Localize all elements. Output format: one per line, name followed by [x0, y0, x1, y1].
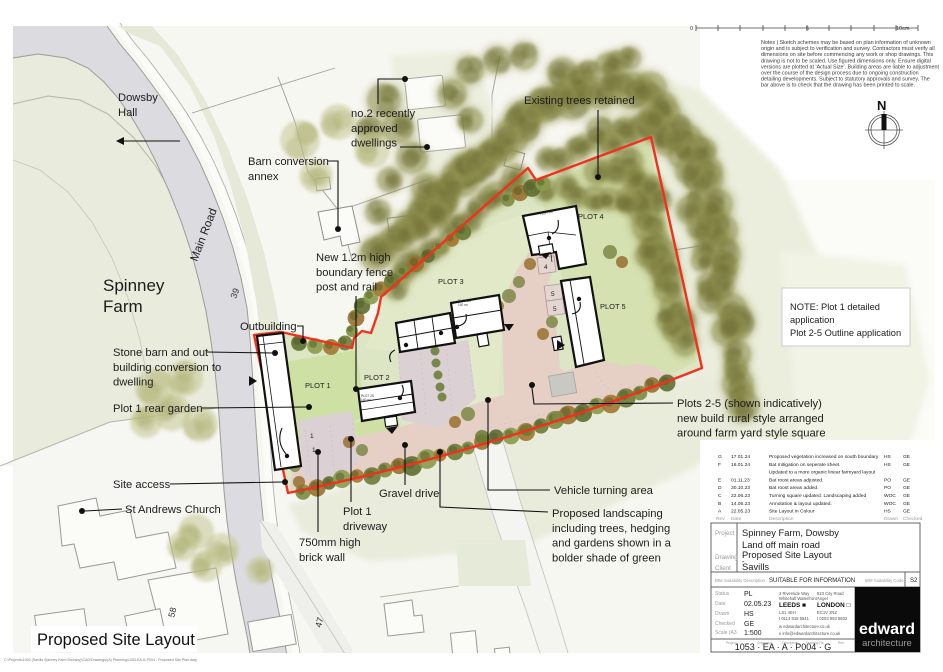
svg-text:Project: Project — [715, 530, 735, 537]
svg-text:Proposed Site Layout: Proposed Site Layout — [742, 549, 832, 560]
svg-text:Checked: Checked — [715, 621, 735, 627]
svg-text:PL: PL — [744, 591, 753, 598]
svg-text:Description: Description — [769, 516, 794, 522]
svg-text:Plots 2-5 (shown indicatively): Plots 2-5 (shown indicatively)new build … — [677, 398, 826, 440]
svg-text:architecture: architecture — [862, 638, 912, 649]
svg-text:Turning square updated. Landsc: Turning square updated. Landscaping adde… — [769, 493, 866, 499]
svg-text:Rev: Rev — [716, 516, 725, 522]
svg-text:01.11.23: 01.11.23 — [731, 477, 750, 483]
svg-text:Proposed vegetation increased: Proposed vegetation increased on south b… — [769, 454, 879, 460]
svg-text:Drawing: Drawing — [715, 554, 738, 561]
svg-text:EC1V 2NZ: EC1V 2NZ — [817, 610, 837, 615]
svg-text:5: 5 — [806, 26, 809, 32]
svg-text:Outbuilding: Outbuilding — [240, 321, 297, 333]
svg-text:Scale (A3: Scale (A3 — [715, 630, 737, 636]
svg-text:WOC: WOC — [884, 501, 896, 507]
svg-text:HS: HS — [884, 462, 892, 468]
svg-text:SUITABLE FOR INFORMATION: SUITABLE FOR INFORMATION — [769, 578, 855, 584]
svg-text:140 m²: 140 m² — [458, 303, 468, 307]
svg-text:edward: edward — [859, 621, 915, 638]
svg-text:NOTE: Plot 1 detailed: NOTE: Plot 1 detailed — [790, 302, 880, 312]
svg-text:Drawn: Drawn — [884, 516, 898, 522]
svg-text:D: D — [718, 485, 722, 491]
svg-text:S2: S2 — [910, 578, 918, 584]
svg-text:5: 5 — [551, 291, 555, 298]
svg-text:Status: Status — [715, 591, 730, 597]
svg-text:Spinney Farm, Dowsby: Spinney Farm, Dowsby — [742, 527, 839, 538]
svg-text:Existing trees retained: Existing trees retained — [524, 95, 635, 107]
svg-text:GE: GE — [903, 493, 911, 499]
svg-text:Site Layout in Colour: Site Layout in Colour — [769, 509, 815, 515]
svg-text:C: C — [718, 493, 722, 499]
svg-text:application: application — [790, 315, 834, 325]
svg-text:1: 1 — [310, 433, 314, 440]
svg-text:LS1 4EH: LS1 4EH — [779, 610, 796, 615]
svg-text:Client: Client — [715, 565, 731, 572]
svg-text:Date: Date — [731, 516, 742, 522]
svg-text:02.05.23: 02.05.23 — [744, 601, 771, 608]
svg-text:17.01.24: 17.01.24 — [731, 454, 750, 460]
svg-text:16.01.24: 16.01.24 — [731, 462, 750, 468]
svg-text:PLOT 5: PLOT 5 — [600, 302, 626, 311]
svg-text:Angel: Angel — [817, 596, 828, 601]
svg-text:Farm: Farm — [103, 297, 143, 316]
svg-text:5: 5 — [553, 306, 557, 313]
svg-text:Bat roost areas adjusted.: Bat roost areas adjusted. — [769, 477, 823, 483]
svg-text:10cm: 10cm — [896, 26, 910, 32]
svg-text:Savills: Savills — [742, 561, 769, 572]
svg-text:G: G — [718, 454, 722, 460]
svg-text:Bat mitigation on seperate she: Bat mitigation on seperate sheet. — [769, 462, 841, 468]
svg-text:w edwardarchitecture.co.uk: w edwardarchitecture.co.uk — [779, 624, 831, 629]
svg-text:Gravel drive: Gravel drive — [379, 488, 439, 500]
svg-text:4: 4 — [544, 264, 548, 271]
svg-text:N: N — [877, 98, 886, 113]
svg-text:GE: GE — [903, 454, 911, 460]
svg-text:Plot 2-5 Outline application: Plot 2-5 Outline application — [790, 328, 901, 338]
svg-text:drawing is not to be scaled. U: drawing is not to be scaled. Use figured… — [761, 58, 931, 64]
svg-text:PO: PO — [884, 477, 891, 483]
svg-text:30.10.23: 30.10.23 — [731, 485, 750, 491]
svg-text:22.05.23: 22.05.23 — [731, 509, 750, 515]
svg-text:Spinney: Spinney — [103, 276, 165, 295]
svg-text:1:500: 1:500 — [744, 630, 762, 637]
svg-text:Date: Date — [715, 601, 726, 607]
svg-text:versions are plotted at 'Actua: versions are plotted at 'Actual Size'. B… — [761, 64, 939, 70]
svg-text:Site access: Site access — [113, 479, 171, 491]
svg-text:1053 · EA · A · P004 ·: 1053 · EA · A · P004 · G — [735, 642, 832, 652]
svg-text:HS: HS — [744, 611, 754, 618]
svg-text:PO: PO — [884, 485, 891, 491]
svg-text:Whitehall Waterfront: Whitehall Waterfront — [779, 596, 818, 601]
svg-text:t 0203 893 8602: t 0203 893 8602 — [817, 616, 848, 621]
svg-text:Plot 1 rear garden: Plot 1 rear garden — [113, 403, 203, 415]
svg-text:St Andrews Church: St Andrews Church — [125, 504, 221, 516]
svg-text:LONDON □: LONDON □ — [817, 602, 850, 609]
svg-text:Updated to a more organic line: Updated to a more organic linear farmyar… — [769, 470, 876, 476]
svg-text:Notes | Sketch schemes may be: Notes | Sketch schemes may be based on p… — [761, 40, 931, 46]
svg-text:Proposed Site Layout: Proposed Site Layout — [37, 631, 195, 649]
svg-text:t 0113 818 9541: t 0113 818 9541 — [779, 616, 810, 621]
svg-text:BIM Suitability Code: BIM Suitability Code — [865, 578, 904, 583]
svg-text:22.06.23: 22.06.23 — [731, 493, 750, 499]
svg-text:B: B — [718, 501, 721, 507]
svg-text:Annotation & layout updated.: Annotation & layout updated. — [769, 501, 832, 507]
svg-text:PLOT 3: PLOT 3 — [438, 277, 464, 286]
svg-text:Bat roost areas added.: Bat roost areas added. — [769, 485, 818, 491]
svg-text:GE: GE — [903, 509, 911, 515]
svg-text:Checked: Checked — [903, 516, 923, 522]
svg-text:e info@edwardarchitecture.co.u: e info@edwardarchitecture.co.uk — [779, 631, 841, 636]
svg-text:WOC: WOC — [884, 493, 896, 499]
svg-text:GE: GE — [744, 621, 754, 628]
svg-text:PLOT 4: PLOT 4 — [578, 212, 604, 221]
svg-text:GE: GE — [903, 485, 911, 491]
svg-text:Drawn: Drawn — [715, 611, 730, 617]
svg-text:GE: GE — [903, 501, 911, 507]
svg-text:GE: GE — [903, 462, 911, 468]
svg-text:dimensions on site before comm: dimensions on site before commencing any… — [761, 52, 933, 58]
svg-text:C:\Projects\1053 (Savills Spin: C:\Projects\1053 (Savills Spinney Farm D… — [4, 658, 197, 662]
svg-text:over the course of the design: over the course of the design process du… — [761, 71, 919, 77]
svg-text:-: - — [742, 557, 745, 566]
svg-text:LEEDS ■: LEEDS ■ — [779, 602, 806, 609]
svg-text:140 m²: 140 m² — [361, 398, 371, 402]
svg-text:bar above is to check that the: bar above is to check that the drawing h… — [761, 83, 915, 89]
svg-text:origin and is subject to verif: origin and is subject to verification an… — [761, 46, 935, 52]
svg-text:HS: HS — [884, 509, 892, 515]
svg-text:HS: HS — [884, 454, 892, 460]
svg-text:Vehicle turning area: Vehicle turning area — [554, 485, 654, 497]
svg-text:Rev: Rev — [838, 641, 844, 645]
svg-text:0: 0 — [690, 26, 693, 32]
svg-text:F: F — [718, 462, 721, 468]
svg-text:BIM Suitability Description: BIM Suitability Description — [715, 578, 766, 583]
svg-text:detailing developments. Subjec: detailing developments. Subject to statu… — [761, 77, 930, 83]
svg-text:PLOT 1: PLOT 1 — [305, 381, 331, 390]
svg-text:PLOT 2: PLOT 2 — [364, 373, 390, 382]
svg-text:GE: GE — [903, 477, 911, 483]
svg-text:14.06.23: 14.06.23 — [731, 501, 750, 507]
